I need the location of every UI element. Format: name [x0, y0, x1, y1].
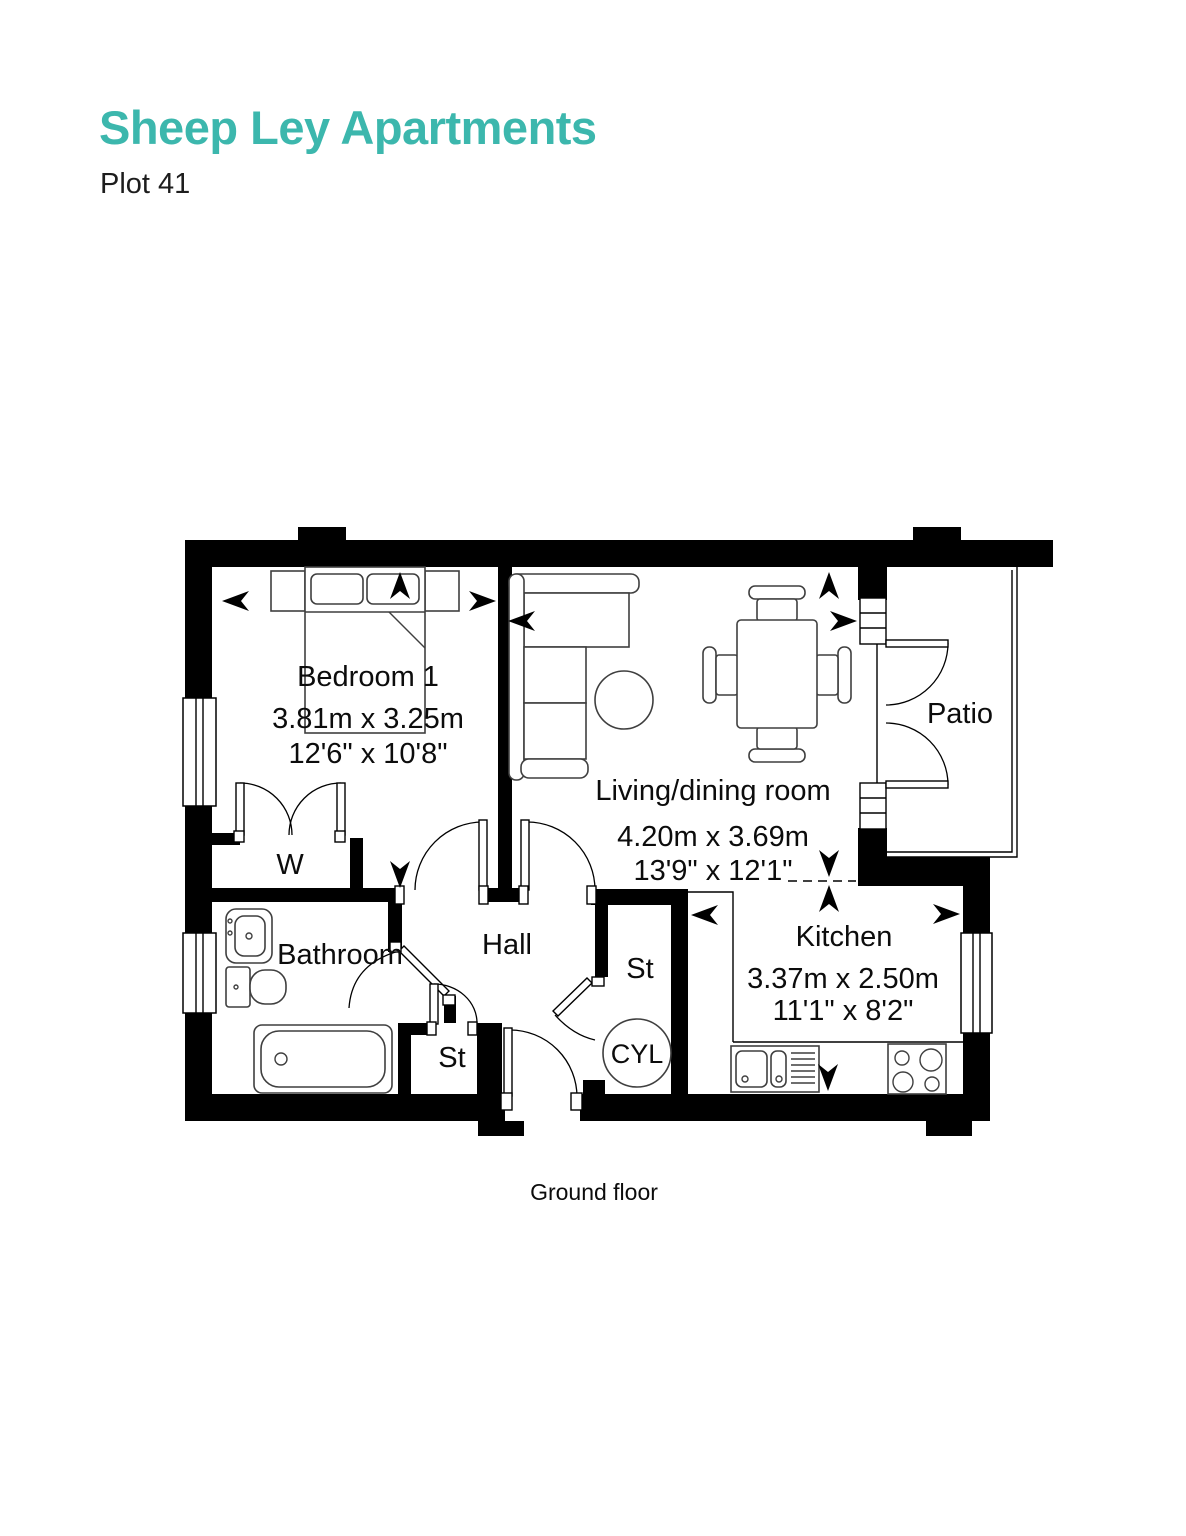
floor-caption: Ground floor [530, 1179, 658, 1205]
bedroom-depth-arrow-bottom [390, 861, 410, 888]
kitchen-width-arrow-left [691, 905, 718, 925]
bedroom-width-arrow-left [222, 591, 249, 611]
kitchen-width-arrow-right [933, 904, 960, 924]
bedroom-window [183, 698, 216, 806]
bedroom-width-arrow-right [469, 591, 496, 611]
living-dim-metric: 4.20m x 3.69m [617, 821, 809, 853]
living-depth-arrow-bottom [819, 850, 839, 877]
floorplan-page: Sheep Ley Apartments Plot 41 [0, 0, 1186, 1536]
cylinder-label: CYL [611, 1039, 664, 1069]
floor-plan: Bedroom 1 3.81m x 3.25m 12'6" x 10'8" Li… [0, 0, 1186, 1536]
patio-label: Patio [927, 698, 993, 730]
hall-label: Hall [482, 929, 532, 961]
bedroom-dim-metric: 3.81m x 3.25m [272, 703, 464, 735]
room-labels: Bedroom 1 3.81m x 3.25m 12'6" x 10'8" Li… [272, 661, 993, 1205]
kitchen-window [961, 933, 992, 1033]
bathroom-sink [226, 909, 272, 963]
kitchen-sink [731, 1046, 819, 1092]
bathtub [254, 1025, 392, 1093]
living-label: Living/dining room [595, 775, 830, 807]
kitchen-dim-metric: 3.37m x 2.50m [747, 963, 939, 995]
kitchen-depth-arrow-bottom [818, 1064, 838, 1091]
hob [888, 1044, 946, 1094]
kitchen-depth-arrow-top [819, 885, 839, 912]
store-left-label: St [438, 1042, 465, 1074]
bathroom-window [183, 933, 216, 1013]
living-depth-arrow-top [819, 572, 839, 599]
living-dim-imperial: 13'9" x 12'1" [633, 855, 792, 887]
dining-set [703, 586, 851, 762]
store-right-label: St [626, 953, 653, 985]
wardrobe-label: W [276, 849, 304, 881]
bedroom-dim-imperial: 12'6" x 10'8" [288, 738, 447, 770]
toilet [226, 967, 286, 1007]
kitchen-label: Kitchen [796, 921, 893, 953]
bathroom-label: Bathroom [277, 939, 403, 971]
living-width-arrow-right [830, 611, 857, 631]
bedroom-label: Bedroom 1 [297, 661, 439, 693]
kitchen-dim-imperial: 11'1" x 8'2" [773, 995, 914, 1027]
coffee-table [595, 671, 653, 729]
